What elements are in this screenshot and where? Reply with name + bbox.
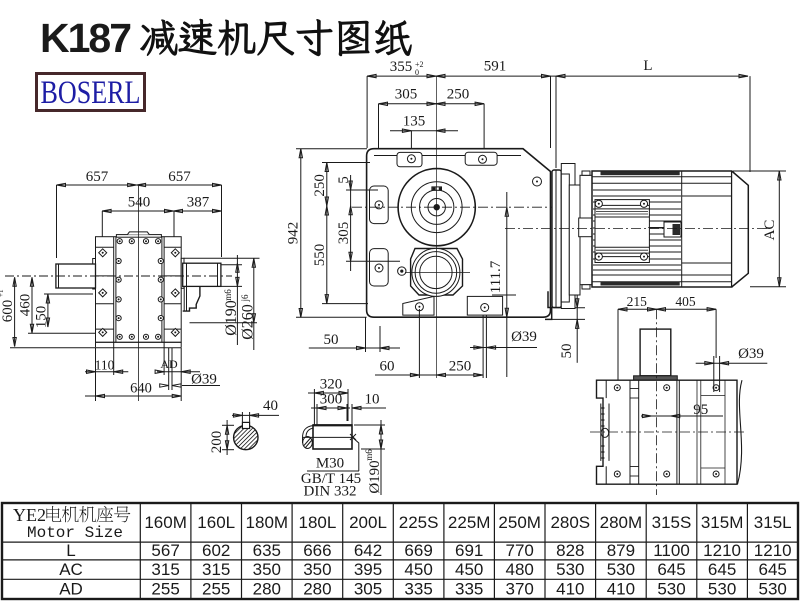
svg-text:250: 250	[449, 359, 472, 375]
svg-text:335: 335	[404, 580, 432, 599]
svg-text:645: 645	[657, 560, 685, 579]
svg-text:60: 60	[380, 359, 395, 375]
svg-text:40: 40	[263, 398, 278, 414]
svg-text:m6: m6	[223, 289, 233, 301]
svg-text:666: 666	[303, 541, 331, 560]
svg-text:10: 10	[365, 392, 380, 408]
svg-text:Ø190: Ø190	[223, 300, 240, 336]
svg-text:M30: M30	[316, 456, 344, 472]
svg-text:410: 410	[556, 580, 584, 599]
svg-text:645: 645	[759, 560, 787, 579]
svg-text:255: 255	[151, 580, 179, 599]
svg-text:335: 335	[455, 580, 483, 599]
svg-text:250M: 250M	[498, 513, 541, 532]
svg-text:315: 315	[151, 560, 179, 579]
svg-text:YE2: YE2	[13, 505, 46, 525]
svg-text:AD: AD	[59, 580, 83, 599]
svg-text:942: 942	[286, 222, 302, 245]
svg-text:460: 460	[18, 294, 34, 317]
svg-text:50: 50	[559, 344, 575, 359]
svg-text:315L: 315L	[754, 513, 792, 532]
svg-text:480: 480	[506, 560, 534, 579]
svg-text:180M: 180M	[246, 513, 289, 532]
svg-text:K187: K187	[40, 15, 130, 61]
svg-text:300: 300	[320, 392, 343, 408]
svg-text:315M: 315M	[701, 513, 744, 532]
svg-text:L: L	[66, 541, 75, 560]
svg-text:828: 828	[556, 541, 584, 560]
svg-text:691: 691	[455, 541, 483, 560]
svg-text:225M: 225M	[448, 513, 491, 532]
svg-text:280: 280	[253, 580, 281, 599]
svg-text:530: 530	[657, 580, 685, 599]
svg-text:657: 657	[168, 169, 191, 185]
svg-text:395: 395	[354, 560, 382, 579]
svg-text:600: 600	[0, 300, 16, 323]
svg-text:657: 657	[86, 169, 109, 185]
svg-text:645: 645	[708, 560, 736, 579]
svg-text:370: 370	[506, 580, 534, 599]
svg-text:225S: 225S	[399, 513, 439, 532]
svg-text:387: 387	[187, 195, 210, 211]
svg-text:602: 602	[202, 541, 230, 560]
svg-text:640: 640	[130, 381, 152, 397]
svg-text:642: 642	[354, 541, 382, 560]
svg-text:530: 530	[708, 580, 736, 599]
svg-text:530: 530	[607, 560, 635, 579]
svg-text:770: 770	[506, 541, 534, 560]
svg-text:Ø260: Ø260	[240, 304, 257, 340]
svg-text:410: 410	[607, 580, 635, 599]
svg-text:550: 550	[312, 244, 328, 267]
svg-text:150: 150	[34, 306, 50, 329]
svg-text:Ø39: Ø39	[738, 346, 764, 362]
svg-text:AC: AC	[762, 220, 778, 241]
svg-text:250: 250	[312, 174, 328, 197]
svg-text:355: 355	[390, 59, 413, 75]
svg-text:160L: 160L	[197, 513, 235, 532]
svg-text:AC: AC	[59, 560, 83, 579]
svg-text:215: 215	[627, 294, 648, 309]
svg-text:879: 879	[607, 541, 635, 560]
svg-text:315S: 315S	[652, 513, 692, 532]
svg-text:BOSERL: BOSERL	[41, 75, 141, 111]
svg-text:669: 669	[404, 541, 432, 560]
svg-text:160M: 160M	[144, 513, 187, 532]
svg-text:450: 450	[455, 560, 483, 579]
svg-text:135: 135	[403, 114, 426, 130]
svg-text:DIN 332: DIN 332	[304, 484, 357, 500]
svg-text:200: 200	[209, 431, 225, 454]
svg-text:305: 305	[354, 580, 382, 599]
svg-text:95: 95	[693, 402, 708, 418]
svg-text:250: 250	[447, 87, 470, 103]
svg-text:m6: m6	[364, 449, 374, 461]
svg-text:1100: 1100	[653, 541, 690, 560]
svg-text:405: 405	[675, 294, 696, 309]
svg-text:111.7: 111.7	[488, 260, 504, 293]
svg-text:Ø39: Ø39	[191, 372, 217, 388]
svg-text:567: 567	[151, 541, 179, 560]
svg-text:530: 530	[759, 580, 787, 599]
svg-text:1210: 1210	[754, 541, 792, 560]
svg-text:280: 280	[303, 580, 331, 599]
svg-text:Ø39: Ø39	[511, 329, 537, 345]
svg-text:5: 5	[336, 176, 352, 184]
svg-text:350: 350	[253, 560, 281, 579]
svg-text:L: L	[643, 58, 652, 74]
svg-text:+1: +1	[0, 289, 5, 297]
svg-text:450: 450	[404, 560, 432, 579]
svg-text:50: 50	[324, 332, 339, 348]
svg-text:320: 320	[320, 377, 343, 393]
svg-text:j6: j6	[240, 294, 250, 303]
svg-text:635: 635	[253, 541, 281, 560]
svg-text:1210: 1210	[703, 541, 741, 560]
svg-text:280M: 280M	[600, 513, 643, 532]
svg-text:305: 305	[336, 222, 352, 245]
svg-text:591: 591	[484, 59, 507, 75]
svg-text:280S: 280S	[550, 513, 590, 532]
svg-text:305: 305	[395, 87, 418, 103]
svg-text:530: 530	[556, 560, 584, 579]
svg-text:110: 110	[95, 358, 115, 373]
svg-text:200L: 200L	[349, 513, 387, 532]
svg-text:Ø190: Ø190	[367, 460, 383, 493]
svg-text:350: 350	[303, 560, 331, 579]
svg-text:0: 0	[415, 68, 419, 77]
svg-text:255: 255	[202, 580, 230, 599]
svg-text:315: 315	[202, 560, 230, 579]
svg-text:180L: 180L	[298, 513, 336, 532]
svg-text:Motor Size: Motor Size	[27, 524, 123, 542]
